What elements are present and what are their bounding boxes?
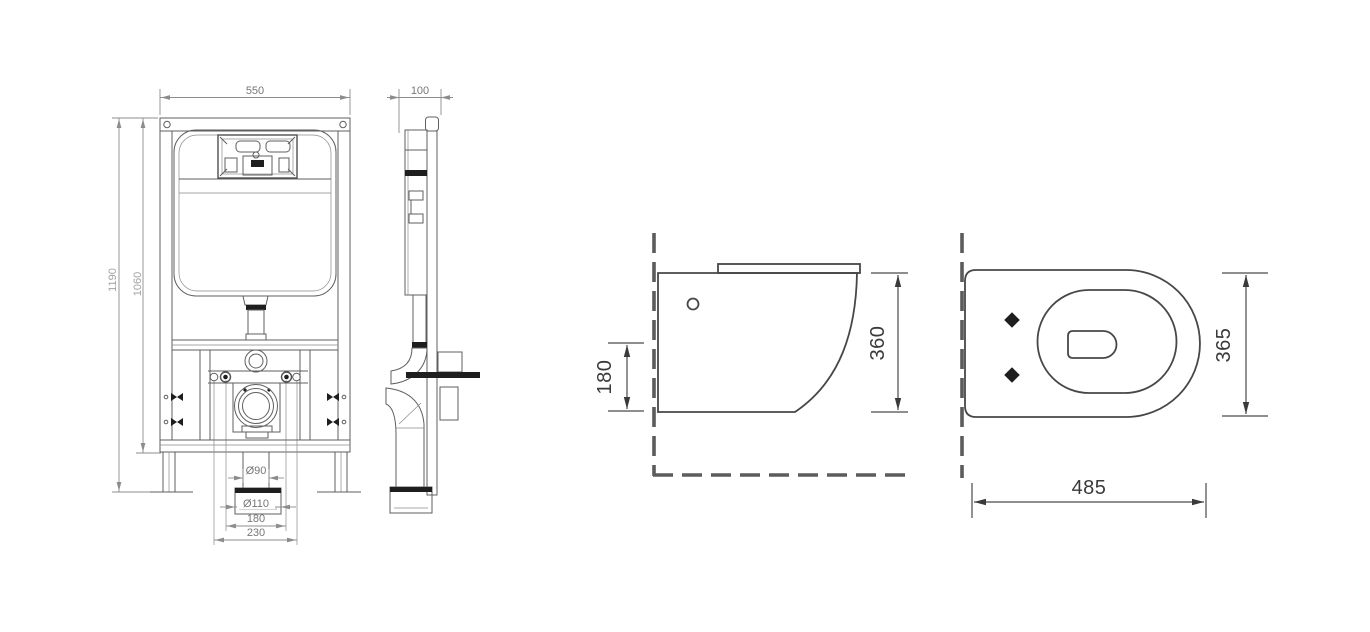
corner-hole: [340, 121, 346, 127]
frame-side-view: 100: [386, 85, 480, 513]
dim-frame-width: 550: [160, 85, 350, 115]
dim-label-frame-depth: 100: [411, 85, 429, 97]
fixing-point: [1004, 312, 1020, 328]
pan-outline: [965, 270, 1200, 417]
dim-pan-width: 365: [1213, 273, 1268, 416]
mounting-bracket-bar: [406, 372, 480, 378]
wall-anchor-lower: [440, 387, 458, 420]
plate-cap: [426, 117, 439, 131]
flush-access-panel: [218, 135, 297, 178]
pan-seat-lid: [718, 264, 860, 273]
dim-label-outlet-socket-dia: Ø110: [243, 498, 269, 510]
drain-mount-plate: [233, 383, 280, 438]
fixing-bolt-rail: [208, 371, 308, 383]
flush-elbow: [391, 348, 427, 384]
dim-label-upper-height: 1060: [132, 272, 144, 296]
dim-outlet-height: 180: [594, 343, 644, 411]
dim-label-fixing-spacing: 180: [247, 513, 265, 525]
dim-label-outlet-pipe-dia: Ø90: [246, 465, 267, 477]
frame-front-view: 550 1190 1060 Ø90: [107, 85, 361, 545]
dim-label-total-height: 1190: [107, 268, 119, 292]
flush-button-slot: [266, 141, 290, 152]
dim-pan-length: 485: [972, 477, 1206, 518]
technical-drawing-canvas: 550 1190 1060 Ø90: [0, 0, 1370, 632]
water-inlet-port: [245, 350, 267, 372]
pan-side-view: 180 360: [594, 233, 913, 476]
flush-pipe: [243, 296, 268, 340]
dim-label-outlet-spacing: 230: [247, 527, 265, 539]
flush-opening: [1068, 331, 1117, 358]
wall-plate: [427, 131, 437, 495]
fixing-point: [1004, 367, 1020, 383]
drain-outlet: [235, 385, 278, 428]
frame-outline: [160, 118, 350, 452]
corner-hole: [164, 121, 170, 127]
dim-label-pan-height: 360: [867, 326, 889, 361]
pipework: [386, 295, 480, 513]
dim-outlet-socket-dia: Ø110: [220, 497, 296, 510]
dim-outlet-pipe-dia: Ø90: [228, 465, 284, 483]
dim-label-pan-length: 485: [1072, 477, 1107, 499]
dim-frame-depth: 100: [387, 85, 453, 133]
cistern-tank: [174, 130, 336, 296]
dim-label-pan-width: 365: [1213, 328, 1235, 363]
installation-drawing: 550 1190 1060 Ø90: [0, 0, 1370, 632]
flush-button-slot: [236, 141, 260, 152]
seat-ring: [1038, 290, 1177, 393]
dim-total-height: 1190: [107, 118, 158, 492]
rail-bolts: [164, 393, 346, 426]
wall-anchor-upper: [438, 352, 462, 372]
pan-top-view: 365 485: [962, 233, 1268, 518]
dim-label-frame-width: 550: [246, 85, 264, 97]
dim-pan-height: 360: [867, 273, 908, 412]
dim-upper-height: 1060: [132, 118, 161, 453]
dim-outlet-spacing: 230: [214, 527, 297, 542]
drain-elbow: [386, 388, 424, 487]
dim-label-outlet-height: 180: [594, 360, 616, 395]
cistern-profile: [405, 130, 427, 295]
seat-fixing-hole: [688, 299, 699, 310]
pan-body-profile: [658, 273, 857, 412]
